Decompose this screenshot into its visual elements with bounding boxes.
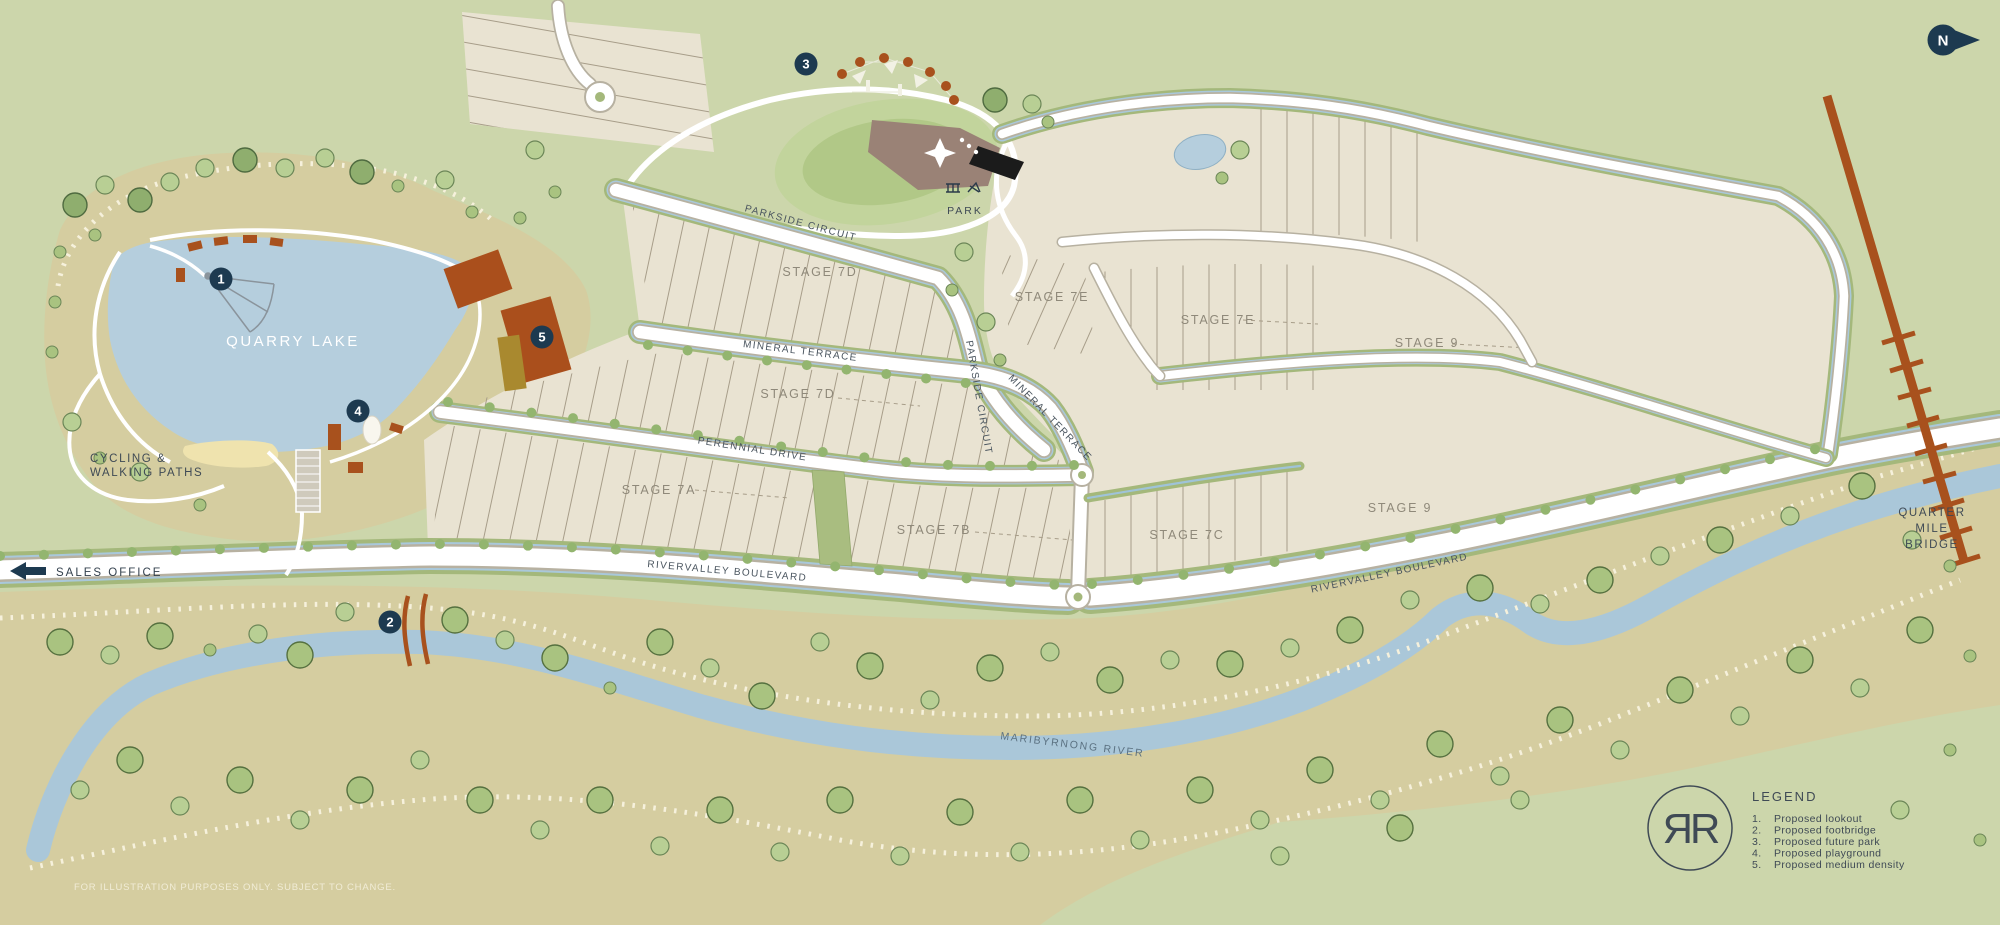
quarry-lake-label: QUARRY LAKE (226, 333, 360, 350)
sales-office-label: SALES OFFICE (56, 567, 162, 579)
north-label: N (1938, 33, 1949, 50)
stage-7e-label-1: STAGE 7E (1015, 290, 1090, 304)
connector-road (1078, 475, 1082, 594)
marker-1: 1 (210, 268, 233, 291)
legend-item-num: 3. (1752, 836, 1762, 848)
disclaimer-text: FOR ILLUSTRATION PURPOSES ONLY. SUBJECT … (74, 882, 396, 893)
stage-9-label-2: STAGE 9 (1368, 501, 1432, 515)
stage-7e-label-2: STAGE 7E (1181, 313, 1256, 327)
stage-7c-label: STAGE 7C (1149, 528, 1224, 542)
marker-4: 4 (347, 400, 370, 423)
masterplan-map: QUARRY LAKE CYCLING & WALKING PATHS MARI… (0, 0, 2000, 925)
legend-item-num: 2. (1752, 825, 1762, 837)
stage-7d-label-1: STAGE 7D (782, 265, 857, 279)
cycling-paths-label-2: WALKING PATHS (90, 467, 203, 479)
marker-2: 2 (379, 611, 402, 634)
legend-item-text: Proposed lookout (1774, 813, 1862, 825)
legend-item-text: Proposed future park (1774, 836, 1880, 848)
legend-item-text: Proposed medium density (1774, 859, 1905, 871)
marker-5-number: 5 (538, 330, 545, 345)
marker-2-number: 2 (386, 615, 393, 630)
quarter-mile-bridge-label-1: QUARTER (1898, 507, 1965, 519)
roundabout-lower (1066, 585, 1090, 609)
marker-5: 5 (531, 326, 554, 349)
park-label: PARK (947, 205, 983, 217)
stage-9-label-1: STAGE 9 (1395, 336, 1459, 350)
stage-7a-label: STAGE 7A (622, 483, 697, 497)
marker-3-number: 3 (802, 57, 809, 72)
marker-4-number: 4 (354, 404, 362, 419)
legend-item-text: Proposed playground (1774, 848, 1881, 860)
quarter-mile-bridge-label-2: MILE (1915, 523, 1948, 535)
masterplan-svg: QUARRY LAKE CYCLING & WALKING PATHS MARI… (0, 0, 2000, 925)
marker-1-number: 1 (217, 272, 224, 287)
legend-item-num: 1. (1752, 813, 1762, 825)
brand-monogram: ЯR (1663, 805, 1719, 852)
legend-title: LEGEND (1752, 789, 1817, 804)
parking-lot (296, 450, 320, 512)
cycling-paths-label-1: CYCLING & (90, 453, 166, 465)
quarter-mile-bridge-label-3: BRIDGE (1905, 539, 1959, 551)
legend-item-num: 5. (1752, 859, 1762, 871)
stage-7b-label: STAGE 7B (897, 523, 972, 537)
legend-item-num: 4. (1752, 848, 1762, 860)
legend-item-text: Proposed footbridge (1774, 825, 1876, 837)
marker-3: 3 (795, 53, 818, 76)
stage-7d-label-2: STAGE 7D (760, 387, 835, 401)
